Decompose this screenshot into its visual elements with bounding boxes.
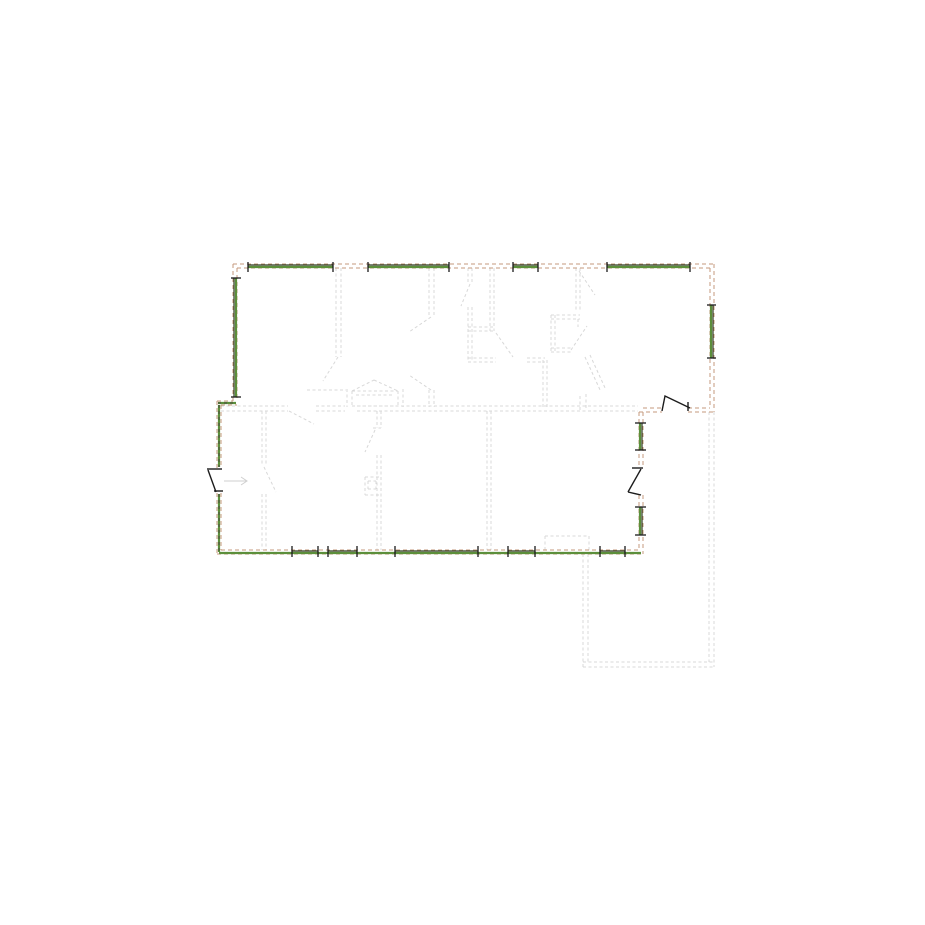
drawing-canvas [0,0,925,925]
floorplan-drawing [0,0,925,925]
canvas-background [0,0,925,925]
